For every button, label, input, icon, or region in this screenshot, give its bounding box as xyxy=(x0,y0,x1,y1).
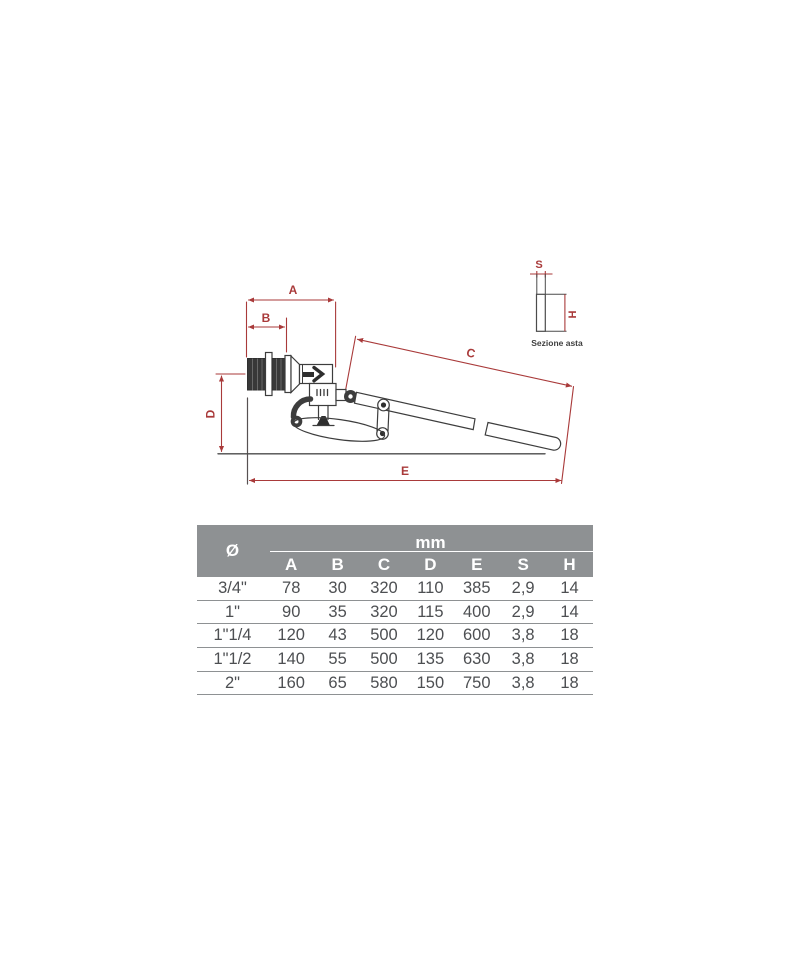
svg-text:A: A xyxy=(289,283,298,297)
svg-text:Sezione asta: Sezione asta xyxy=(531,338,583,348)
svg-text:C: C xyxy=(465,345,477,361)
svg-text:D: D xyxy=(204,409,218,418)
svg-text:B: B xyxy=(262,311,271,325)
svg-text:E: E xyxy=(401,464,409,478)
svg-text:S: S xyxy=(535,259,542,271)
svg-text:H: H xyxy=(566,311,578,319)
